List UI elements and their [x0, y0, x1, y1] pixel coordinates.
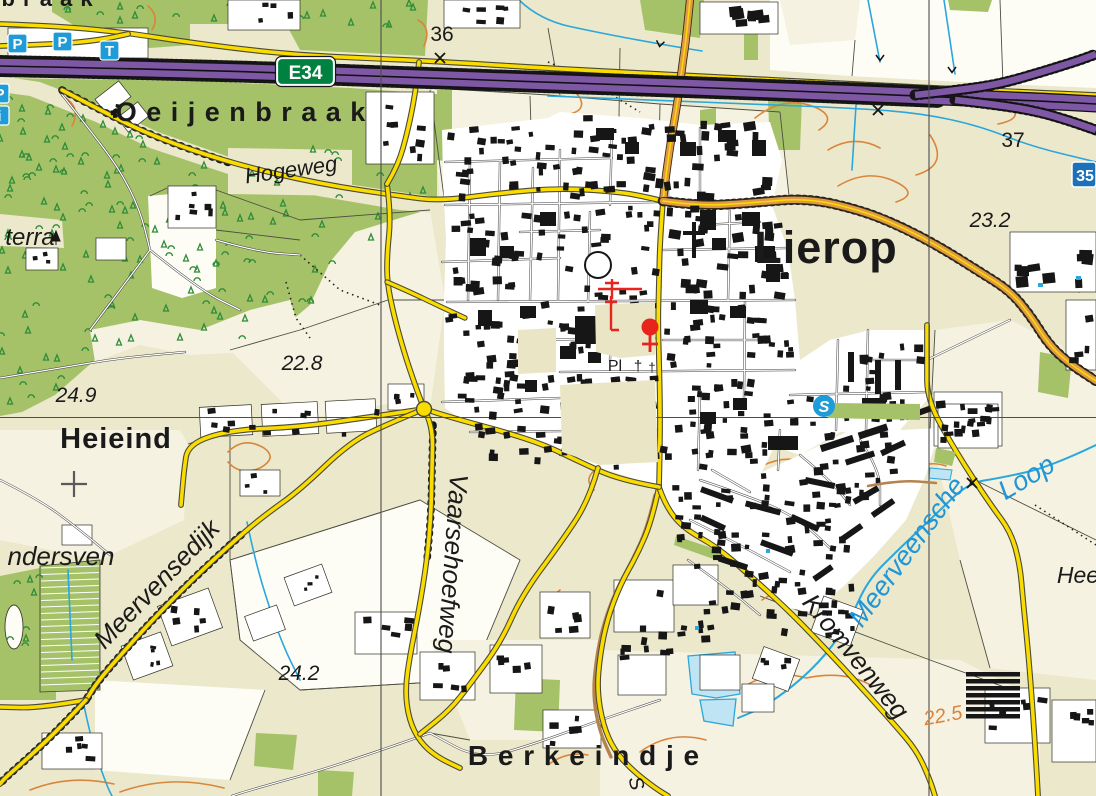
svg-text:35: 35 — [1076, 168, 1094, 185]
svg-text:24.9: 24.9 — [55, 384, 97, 407]
svg-text:P: P — [57, 34, 67, 51]
svg-text:i: i — [0, 108, 2, 125]
svg-text:23.2: 23.2 — [969, 209, 1011, 232]
svg-text:S: S — [819, 399, 830, 416]
svg-text:Pl: Pl — [608, 358, 622, 375]
svg-text:22.8: 22.8 — [281, 352, 323, 375]
svg-text:37: 37 — [1001, 129, 1024, 152]
svg-text:Lierop: Lierop — [754, 222, 898, 273]
svg-text:P: P — [12, 36, 22, 53]
svg-text:B e r k e i n d j e: B e r k e i n d j e — [468, 740, 700, 771]
svg-text:†: † — [634, 358, 642, 375]
svg-text:†: † — [648, 360, 655, 375]
svg-text:T: T — [105, 43, 114, 60]
svg-text:Heieind: Heieind — [60, 423, 172, 455]
svg-text:terra: terra — [5, 224, 54, 251]
svg-text:u n b r a a k: u n b r a a k — [0, 0, 94, 11]
svg-text:P: P — [0, 86, 5, 103]
svg-text:ndersven: ndersven — [8, 541, 115, 571]
svg-text:36: 36 — [430, 23, 453, 46]
svg-text:Hee: Hee — [1057, 562, 1096, 588]
svg-text:24.2: 24.2 — [278, 662, 320, 685]
svg-text:O e i j e n b r a a k: O e i j e n b r a a k — [116, 97, 367, 127]
svg-text:E34: E34 — [289, 63, 323, 84]
